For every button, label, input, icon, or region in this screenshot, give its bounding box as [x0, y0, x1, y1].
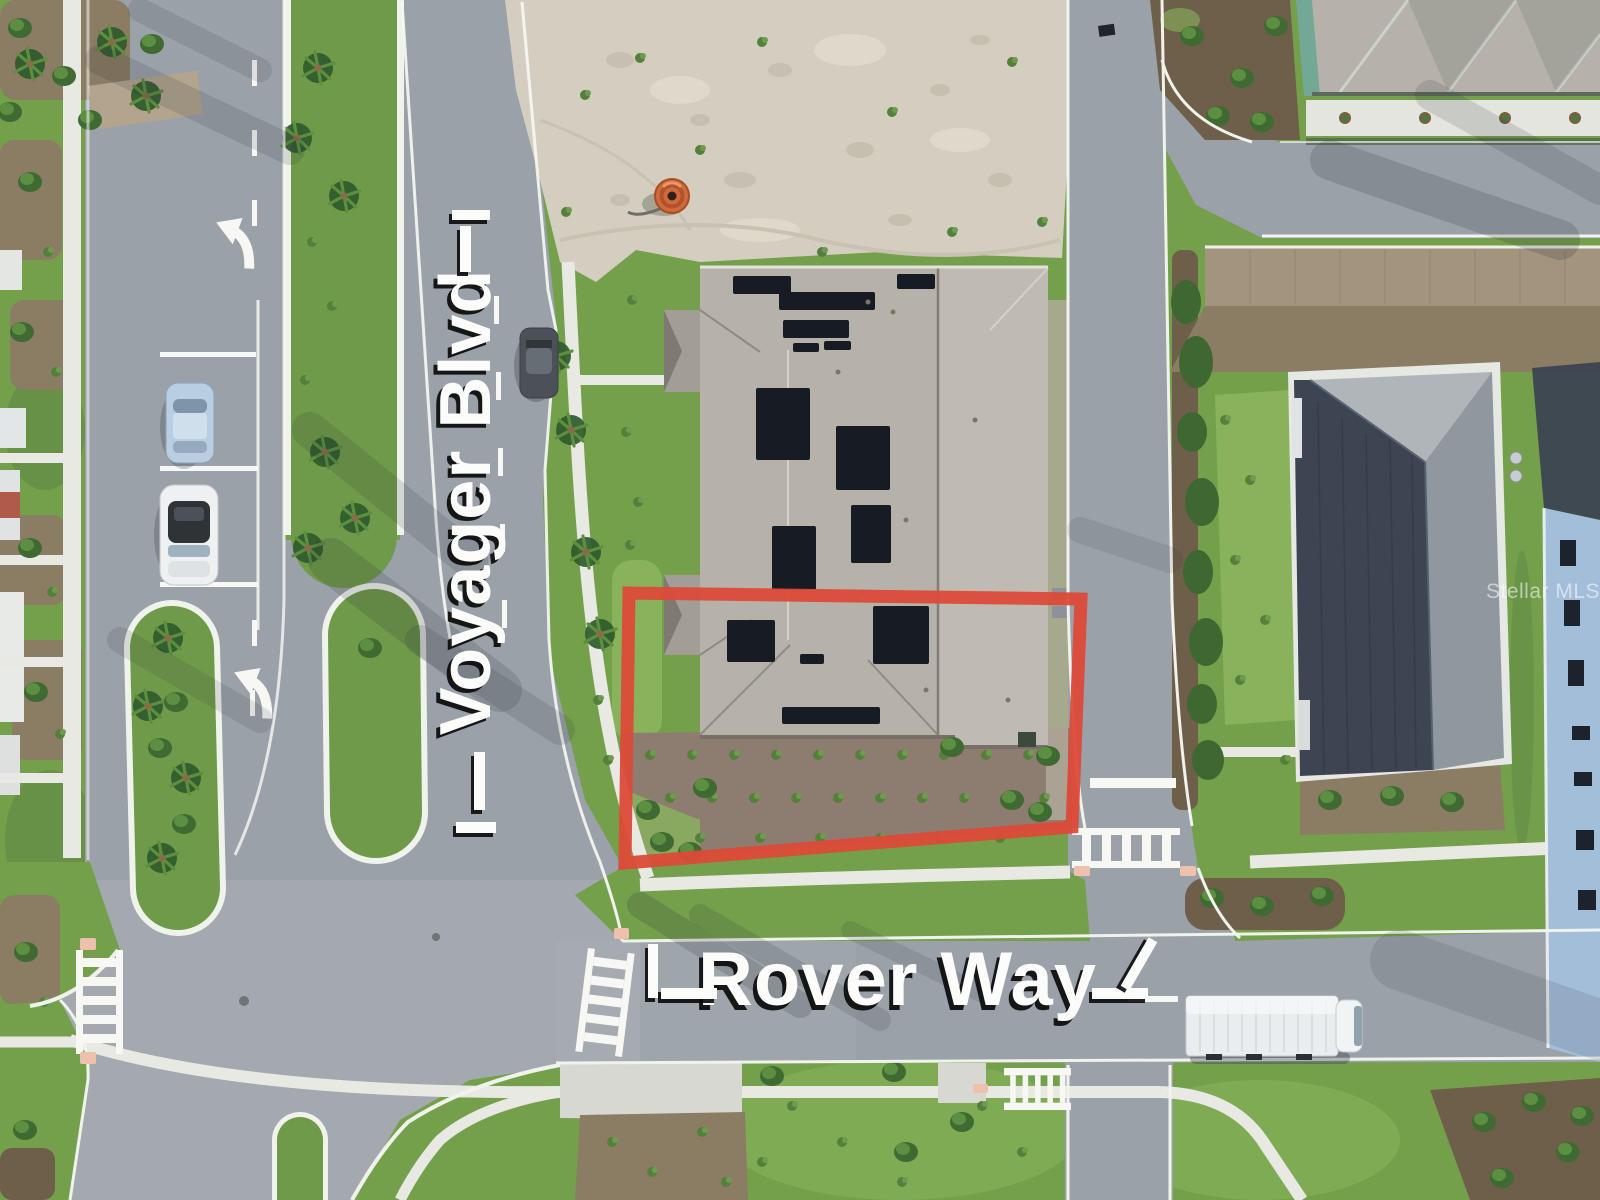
label-dash [460, 226, 471, 272]
street-label-voyager-text: Voyager Blvd [426, 269, 506, 736]
crosswalk [1004, 1068, 1071, 1110]
parked-suv-white [154, 485, 218, 585]
crosswalk [1072, 828, 1180, 868]
neighbor-house-right [1288, 362, 1522, 782]
parked-car-blue [160, 383, 214, 469]
subject-side-gravel [1046, 300, 1068, 820]
vacant-lot-sand [505, 0, 1068, 282]
storm-drain [1098, 24, 1115, 37]
label-tick [452, 210, 490, 220]
label-dash [661, 988, 717, 999]
street-label-rover: Rover Way [698, 942, 1097, 1018]
label-dash [1092, 988, 1148, 999]
label-tick [456, 822, 496, 833]
paver-parking-band [1205, 247, 1600, 306]
aerial-listing-photo: Voyager Blvd Rover Way Stellar MLS [0, 0, 1600, 1200]
clubhouse [1296, 0, 1600, 145]
ac-unit [1052, 606, 1067, 618]
subject-house [664, 267, 1067, 747]
rover-south-bed [575, 1112, 748, 1200]
mls-watermark: Stellar MLS [1486, 580, 1600, 604]
parked-car-dark [514, 328, 558, 402]
label-tick [648, 944, 658, 998]
street-label-voyager: Voyager Blvd [430, 269, 502, 736]
side-street-south [1065, 1062, 1173, 1200]
street-label-rover-text: Rover Way [698, 937, 1097, 1022]
label-dash [474, 752, 485, 810]
crosswalk [76, 950, 123, 1054]
box-truck [1186, 996, 1362, 1064]
bin [1018, 732, 1036, 747]
